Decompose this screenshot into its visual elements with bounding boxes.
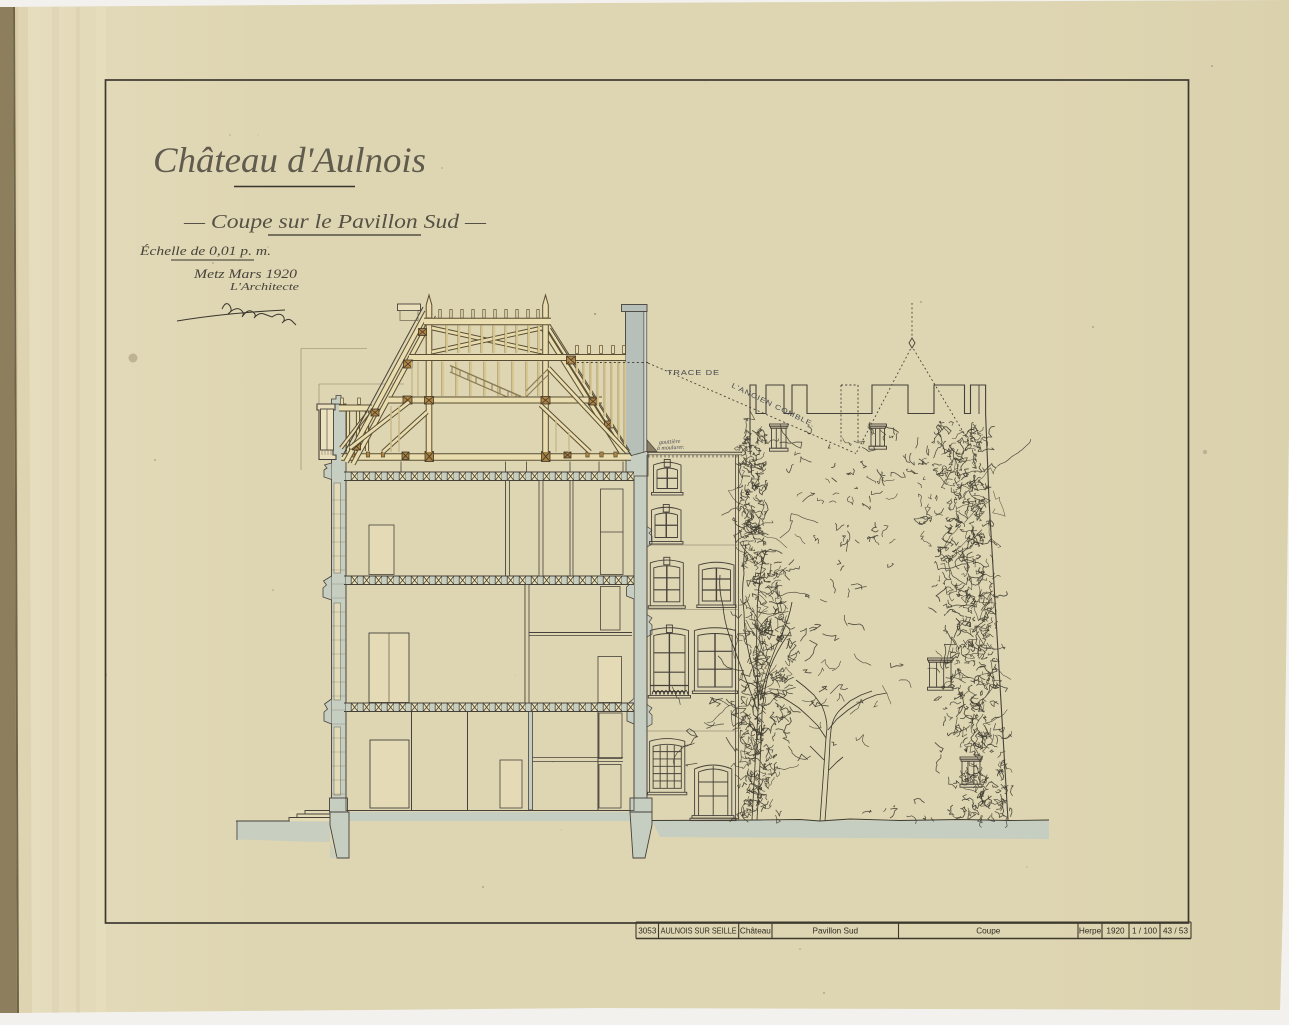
svg-text:L'Architecte: L'Architecte [229,282,300,293]
svg-text:Château d'Aulnois: Château d'Aulnois [153,140,426,180]
svg-text:TRACE DE: TRACE DE [667,370,720,377]
svg-text:1920: 1920 [1106,927,1125,936]
svg-text:— Coupe sur le Pavillon Sud: — Coupe sur le Pavillon Sud — [183,211,487,233]
svg-text:AULNOIS SUR SEILLE: AULNOIS SUR SEILLE [661,927,737,936]
svg-text:Metz Mars 1920: Metz Mars 1920 [193,266,298,281]
svg-text:3053: 3053 [638,927,657,936]
svg-text:1 / 100: 1 / 100 [1132,927,1157,936]
svg-text:Échelle de 0,01 p. m.: Échelle de 0,01 p. m. [139,244,271,258]
svg-text:Château: Château [740,927,771,936]
svg-text:Herpe: Herpe [1079,927,1102,936]
svg-text:43 / 53: 43 / 53 [1163,927,1188,936]
svg-text:Pavillon Sud: Pavillon Sud [813,927,859,936]
svg-text:Coupe: Coupe [976,927,1001,936]
